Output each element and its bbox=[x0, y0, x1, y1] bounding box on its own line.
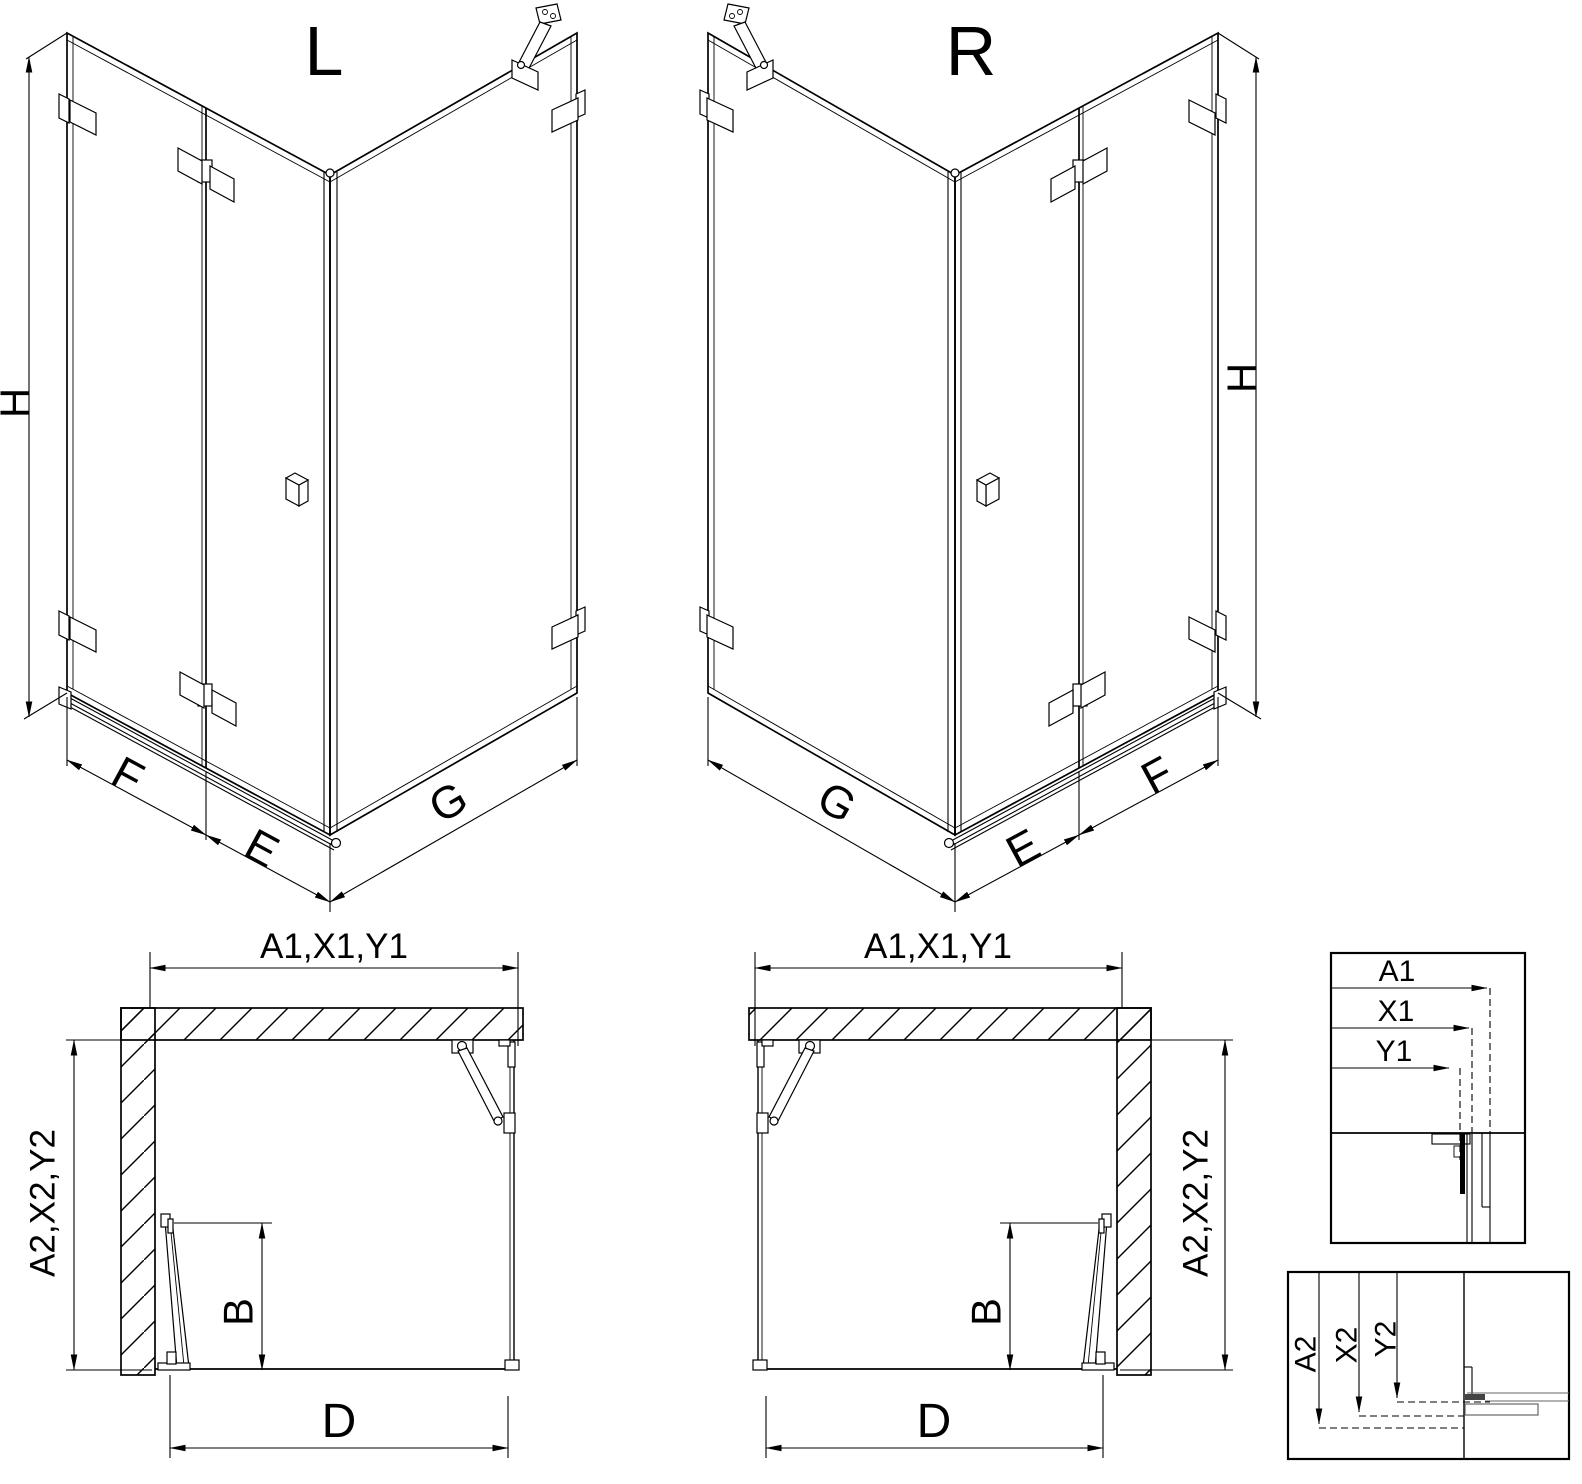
wall-bracket-top-right bbox=[552, 90, 585, 132]
corner-cap bbox=[326, 169, 334, 177]
corner-cap bbox=[951, 169, 959, 177]
dim-depth-label: A2,X2,Y2 bbox=[24, 1129, 63, 1277]
open-door-plan bbox=[158, 1214, 190, 1370]
dim-width-label: A1,X1,Y1 bbox=[260, 927, 408, 966]
door-hinge-bottom bbox=[180, 672, 236, 726]
dim-f-label: F bbox=[1133, 746, 1181, 804]
wall-bracket-top-right bbox=[1189, 94, 1226, 135]
open-door-plan bbox=[1082, 1214, 1114, 1370]
detail-a2-label: A2 bbox=[1290, 1336, 1323, 1373]
drawing-canvas: L bbox=[0, 0, 1582, 1484]
detail-x2-label: X2 bbox=[1331, 1327, 1364, 1364]
shower-enclosure-technical-drawing: L bbox=[0, 0, 1582, 1484]
dim-door-width: B bbox=[174, 1223, 272, 1370]
dim-g-label: G bbox=[420, 771, 476, 833]
dim-bottom-right: G E F bbox=[708, 697, 1218, 912]
dim-e-label: E bbox=[998, 818, 1049, 877]
wall-profile-section bbox=[1331, 1133, 1525, 1243]
iso-view-left: L bbox=[0, 4, 585, 912]
detail-depth-box: A2 X2 Y2 bbox=[1288, 1272, 1569, 1459]
dim-e-label: E bbox=[237, 818, 288, 877]
wall-bracket-bottom-right bbox=[552, 607, 585, 649]
detail-y1-label: Y1 bbox=[1376, 1035, 1413, 1068]
support-bar-plan bbox=[757, 1040, 820, 1133]
door-wall-glass bbox=[67, 33, 330, 835]
dim-d-label: D bbox=[322, 1395, 357, 1448]
dim-height-label: H bbox=[1219, 363, 1266, 393]
iso-view-right: R bbox=[700, 4, 1266, 912]
dim-b-label: B bbox=[215, 1298, 262, 1326]
variant-label-right: R bbox=[946, 12, 997, 90]
dim-bottom-left: F E G bbox=[67, 697, 577, 912]
dim-width-label: A1,X1,Y1 bbox=[864, 927, 1012, 966]
dim-d-label: D bbox=[917, 1395, 952, 1448]
wall-left bbox=[121, 1008, 155, 1375]
plan-view-right: A1,X1,Y1 A2,X2,Y2 B D bbox=[749, 927, 1233, 1458]
dim-f-label: F bbox=[104, 746, 152, 804]
dim-door-width: B bbox=[963, 1223, 1099, 1370]
wall-bracket-bottom-left bbox=[59, 611, 96, 652]
glass-foot bbox=[753, 1360, 767, 1370]
detail-y2-label: Y2 bbox=[1370, 1321, 1403, 1358]
door-wall-glass bbox=[955, 33, 1218, 835]
dim-height-label: H bbox=[0, 388, 39, 418]
door-handle bbox=[286, 473, 308, 506]
wall-bracket-top-left bbox=[700, 90, 733, 132]
side-wall-glass bbox=[708, 33, 955, 835]
wall-bracket-top-left bbox=[59, 94, 96, 135]
dim-entry-width: D bbox=[766, 1375, 1103, 1458]
dim-height-left: H bbox=[0, 33, 67, 719]
wall-bracket-bottom-right bbox=[1189, 611, 1226, 652]
dim-g-label: G bbox=[809, 771, 865, 833]
detail-x1-label: X1 bbox=[1378, 995, 1415, 1028]
detail-width-box: A1 X1 Y1 bbox=[1331, 953, 1525, 1243]
plan-view-left: A1,X1,Y1 A2,X2,Y2 B bbox=[24, 927, 524, 1458]
support-bar-plan bbox=[452, 1040, 515, 1133]
door-handle bbox=[977, 473, 999, 506]
wall-bracket-bottom-left bbox=[700, 607, 733, 649]
dim-entry-width: D bbox=[170, 1375, 508, 1458]
wall-top bbox=[749, 1008, 1151, 1040]
variant-label-left: L bbox=[305, 12, 344, 90]
dim-b-label: B bbox=[963, 1298, 1010, 1326]
glass-foot bbox=[505, 1360, 519, 1370]
side-wall-glass bbox=[330, 33, 577, 835]
wall-top bbox=[121, 1008, 523, 1040]
door-hinge-bottom bbox=[1049, 672, 1105, 726]
tray-profile-section bbox=[1464, 1272, 1569, 1459]
detail-a1-label: A1 bbox=[1379, 955, 1416, 988]
wall-right bbox=[1117, 1008, 1151, 1375]
dim-depth-label: A2,X2,Y2 bbox=[1177, 1129, 1216, 1277]
